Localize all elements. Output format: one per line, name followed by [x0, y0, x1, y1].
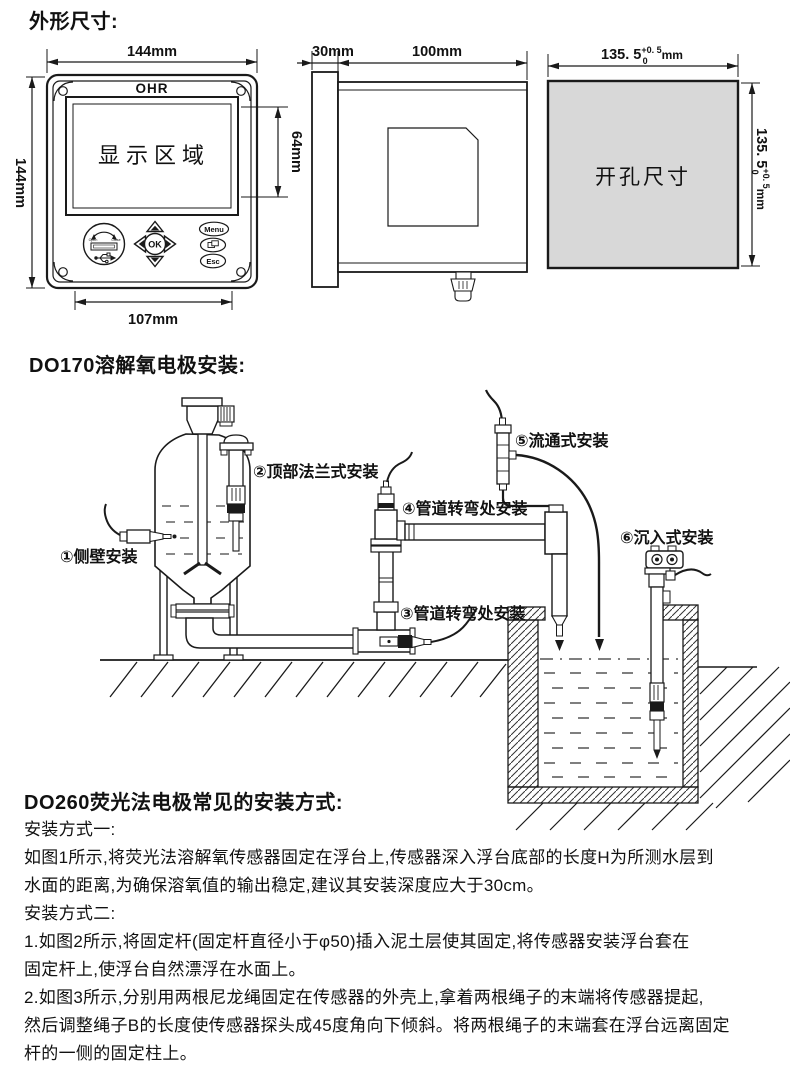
vessel-top-plate	[182, 398, 222, 406]
label-submersion-install: ⑥沉入式安装	[620, 528, 714, 547]
dim-front-bottom-width: 107mm	[75, 291, 232, 328]
panel-buttons: Menu Esc	[200, 222, 229, 268]
instruction-line: 1.如图2所示,将固定杆(固定杆直径小于φ50)插入泥土层使其固定,将传感器安装…	[24, 928, 730, 956]
dim-label: 100mm	[412, 44, 462, 60]
brand-text: OHR	[136, 81, 169, 96]
instruction-line: 安装方式二:	[24, 900, 730, 928]
instruction-line: 水面的距离,为确保溶氧值的输出稳定,建议其安装深度应大于30cm。	[24, 872, 730, 900]
instruction-line: 如图1所示,将荧光法溶解氧传感器固定在浮台上,传感器深入浮台底部的长度H为所测水…	[24, 844, 730, 872]
label-pipe-bend-install-3: ③管道转弯处安装	[400, 604, 526, 623]
instruction-line: 安装方式一:	[24, 816, 730, 844]
ground-right	[698, 667, 790, 808]
dim-cutout-width: 135. 5+0. 50mm	[548, 45, 738, 77]
dim-label: 107mm	[128, 312, 178, 328]
side-view-drawing: 30mm 100mm	[297, 44, 527, 301]
do170-installation-diagram: ①侧壁安装 ②顶部法兰式安装 ③管道转弯处安装 ④管道转弯处安装 ⑤流通式安装 …	[0, 378, 790, 838]
agitator-shaft	[198, 425, 207, 565]
display-area-text: 显示区域	[98, 143, 210, 168]
motor-block	[218, 406, 234, 426]
instruction-line: 固定杆上,使浮台自然漂浮在水面上。	[24, 956, 730, 984]
label-pipe-bend-install-4: ④管道转弯处安装	[402, 499, 528, 518]
sensor-cable	[105, 504, 122, 536]
usb-port-icon: Open Close	[84, 224, 125, 265]
vessel-outlet-pipe	[171, 604, 358, 648]
esc-label: Esc	[206, 257, 219, 266]
label-side-wall-install: ①侧壁安装	[60, 547, 138, 566]
water-pit	[508, 605, 698, 803]
cable-gland	[451, 272, 475, 301]
cutout-drawing: 135. 5+0. 50mm 开孔尺寸 135. 5+0. 50mm	[548, 45, 771, 268]
dim-label: 64mm	[288, 131, 304, 173]
vessel-neck	[187, 406, 218, 434]
menu-label: Menu	[204, 225, 224, 234]
front-view-drawing: 144mm 144mm OHR 显示区域	[12, 44, 304, 328]
dim-label: 144mm	[127, 44, 177, 60]
dim-front-width: 144mm	[47, 44, 257, 73]
dim-front-height: 144mm	[12, 77, 45, 288]
dim-label: 30mm	[312, 44, 354, 60]
label-top-flange-install: ②顶部法兰式安装	[253, 462, 379, 481]
sensor-cable	[387, 452, 412, 482]
discharge-pipe	[552, 554, 567, 616]
do260-instructions: 安装方式一: 如图1所示,将荧光法溶解氧传感器固定在浮台上,传感器深入浮台底部的…	[24, 816, 730, 1068]
dim-label-tolerance: 135. 5+0. 50mm	[750, 128, 771, 210]
usb-close-label: Close	[111, 238, 120, 242]
sensor-cable	[675, 569, 711, 575]
manual-page: { "page": {"ink": "#1a1a1a", "cutout_fil…	[0, 0, 790, 1082]
label-flow-through-install: ⑤流通式安装	[515, 431, 609, 450]
sensor-submersion	[645, 546, 711, 759]
right-tee	[545, 512, 567, 554]
instruction-line: 然后调整绳子B的长度使传感器探头成45度角向下倾斜。将两根绳子的末端套在浮台远离…	[24, 1012, 730, 1040]
side-label-area	[388, 128, 478, 226]
cutout-area-text: 开孔尺寸	[595, 166, 691, 189]
dim-cutout-height: 135. 5+0. 50mm	[741, 83, 771, 266]
dim-label-tolerance: 135. 5+0. 50mm	[601, 45, 683, 66]
dim-label: 144mm	[12, 158, 28, 208]
instruction-line: 杆的一侧的固定柱上。	[24, 1040, 730, 1068]
ok-label: OK	[148, 240, 162, 250]
usb-open-label: Open	[89, 238, 98, 242]
flow-arrow-icon	[555, 640, 564, 651]
instruction-line: 2.如图3所示,分别用两根尼龙绳固定在传感器的外壳上,拿着两根绳子的末端将传感器…	[24, 984, 730, 1012]
flow-arrow-icon	[595, 639, 604, 651]
bezel	[312, 72, 338, 287]
ground-left	[100, 660, 508, 697]
dimension-drawings: 144mm 144mm OHR 显示区域	[0, 30, 790, 366]
